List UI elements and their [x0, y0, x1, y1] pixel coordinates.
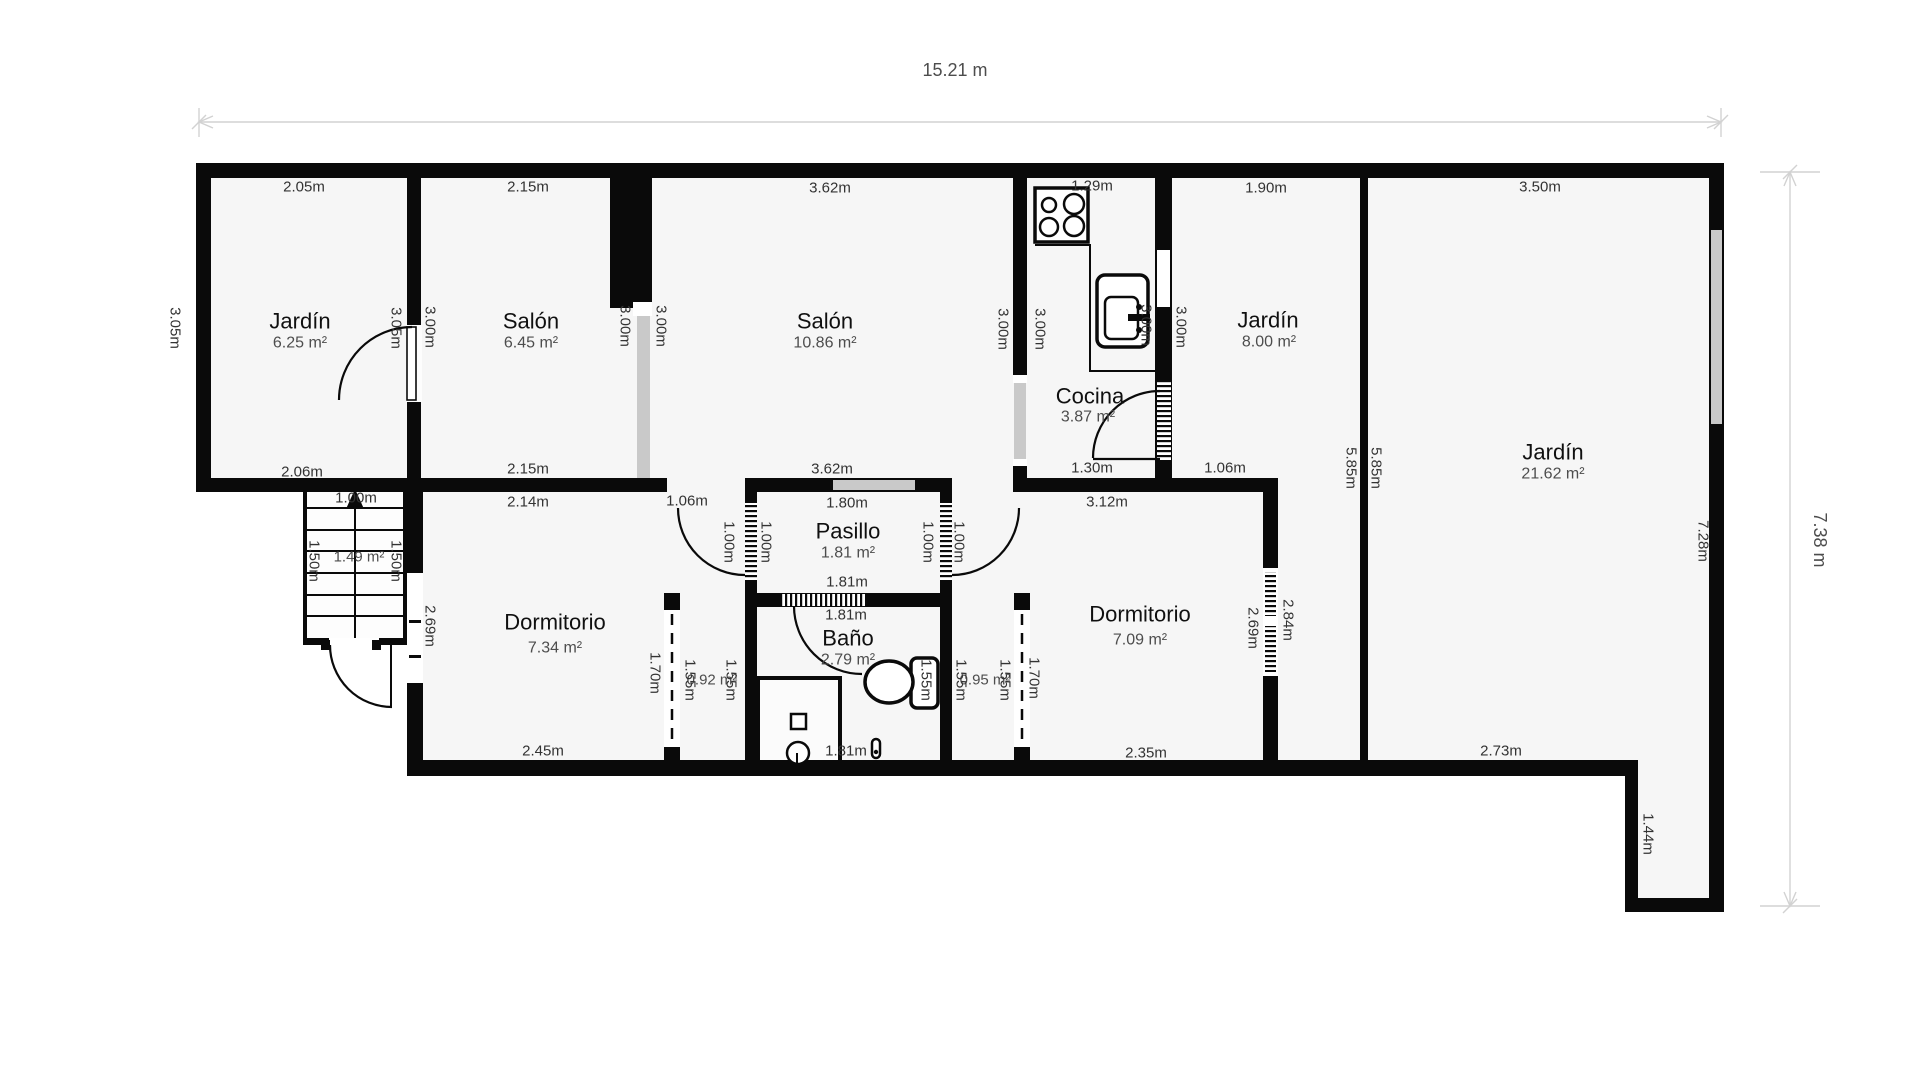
stove-burner — [1064, 216, 1084, 236]
sliding-door-bano — [781, 594, 867, 606]
stairs-wall-bottom-b — [379, 638, 407, 645]
window-dorm-right-glass — [1265, 626, 1276, 672]
dim-label: 1.30m — [1071, 460, 1113, 477]
room-label-jardin-mid: Jardín — [1237, 308, 1298, 333]
wall-jardin-salon-lower — [407, 400, 421, 478]
floorplan-canvas: 15.21 m 7.38 m Jardín 6.25 m² Salón 6.45… — [0, 0, 1920, 1080]
dim-label: 3.62m — [811, 461, 853, 478]
window-right-wall — [1711, 230, 1722, 424]
dim-label: 2.06m — [281, 464, 323, 481]
dim-label: 2.69m — [1245, 607, 1262, 649]
dim-label: 2.15m — [507, 179, 549, 196]
dim-label: 2.69m — [422, 605, 439, 647]
window-dorm-right-glass — [1265, 572, 1276, 616]
room-label-bano: Baño — [822, 626, 873, 651]
room-label-cocina: Cocina — [1056, 384, 1125, 409]
room-area-jardin-right: 21.62 m² — [1521, 466, 1585, 483]
dim-label: 1.00m — [335, 490, 377, 507]
bathroom-accessory-icon — [872, 739, 880, 758]
dim-label: 2.84m — [1280, 599, 1297, 641]
dim-label: 1.50m — [306, 540, 323, 582]
dim-label: 2.73m — [1480, 743, 1522, 760]
dim-label: 5.85m — [1368, 447, 1385, 489]
wall-salon-pillar — [610, 177, 652, 308]
dim-label: 3.00m — [1032, 308, 1049, 350]
dim-label: 1.55m — [682, 659, 699, 701]
room-area-salon-small: 6.45 m² — [504, 335, 559, 352]
wall-jardin-salon-upper — [407, 177, 421, 327]
dim-label: 1.50m — [388, 540, 405, 582]
wall-left — [196, 163, 211, 492]
room-label-pasillo: Pasillo — [816, 519, 881, 544]
dim-label: 3.00m — [653, 305, 670, 347]
dim-label: 1.55m — [723, 659, 740, 701]
wall-mid-c — [1018, 478, 1278, 492]
door-arc-entry — [330, 645, 392, 707]
room-area-cocina: 3.87 m² — [1061, 409, 1116, 426]
stove-burner — [1064, 194, 1084, 214]
window-cap — [1013, 459, 1027, 466]
sliding-door-pasillo-right — [940, 503, 952, 580]
dim-label: 1.80m — [826, 495, 868, 512]
room-area-jardin-mid: 8.00 m² — [1242, 334, 1297, 351]
dim-label: 2.45m — [522, 743, 564, 760]
room-label-dormitorio-left: Dormitorio — [504, 610, 605, 635]
dim-label: 2.05m — [283, 179, 325, 196]
dim-label: 1.70m — [647, 652, 664, 694]
dim-label: 5.85m — [1343, 447, 1360, 489]
dim-label: 3.50m — [1519, 179, 1561, 196]
room-label-dormitorio-right: Dormitorio — [1089, 602, 1190, 627]
window-pasillo-top — [833, 480, 915, 490]
sliding-door-cocina — [1157, 382, 1171, 462]
dim-label: 1.00m — [951, 521, 968, 563]
room-label-jardin-nw: Jardín — [269, 309, 330, 334]
window-cap — [1263, 676, 1278, 682]
dim-label: 1.00m — [758, 521, 775, 563]
window-cap — [407, 566, 423, 573]
dim-label: 1.81m — [826, 574, 868, 591]
window-cap — [407, 683, 423, 690]
dim-label: 1.55m — [997, 659, 1014, 701]
dim-label: 3.05m — [388, 307, 405, 349]
stove-icon — [1035, 188, 1088, 242]
wall-jardin-divider — [1360, 178, 1368, 760]
wall-salon-cocina-upper — [1013, 177, 1027, 380]
window-cap — [1013, 375, 1027, 383]
dim-label: 2.14m — [507, 494, 549, 511]
dim-label: 1.81m — [825, 607, 867, 624]
room-label-salon-big: Salón — [797, 309, 853, 334]
wall-salon-cocina-lower — [1013, 465, 1027, 492]
window-cap — [1263, 562, 1278, 568]
dim-label: 3.00m — [422, 306, 439, 348]
wall-top — [196, 163, 1724, 178]
dim-label: 1.00m — [920, 521, 937, 563]
dim-label: 7.28m — [1695, 520, 1712, 562]
room-area-pasillo: 1.81 m² — [821, 545, 876, 562]
door-leaf-jardin-nw — [407, 327, 416, 400]
room-label-salon-small: Salón — [503, 309, 559, 334]
wall-mid-a — [196, 478, 667, 492]
door-jamb — [372, 640, 381, 650]
total-width-label: 15.21 m — [922, 60, 987, 80]
wall-bottom — [407, 760, 1638, 776]
room-area-jardin-nw: 6.25 m² — [273, 335, 328, 352]
dim-label: 1.29m — [1071, 178, 1113, 195]
window-cocina-right — [1157, 250, 1170, 307]
room-area-dormitorio-left: 7.34 m² — [528, 640, 583, 657]
dim-label: 1.06m — [666, 493, 708, 510]
room-label-jardin-right: Jardín — [1522, 440, 1583, 465]
dim-label: 1.44m — [1640, 813, 1657, 855]
floorplan-page: 15.21 m 7.38 m Jardín 6.25 m² Salón 6.45… — [0, 0, 1920, 1080]
total-height-label: 7.38 m — [1810, 512, 1830, 567]
dim-label: 3.00m — [617, 305, 634, 347]
dim-label: 3.00m — [1173, 306, 1190, 348]
room-area-dormitorio-right: 7.09 m² — [1113, 632, 1168, 649]
dim-label: 1.70m — [1026, 657, 1043, 699]
door-jamb — [321, 640, 330, 650]
dim-label: 3.05m — [167, 307, 184, 349]
dim-label: 1.81m — [825, 743, 867, 760]
dim-label: 1.00m — [721, 521, 738, 563]
dim-label: 2.15m — [507, 461, 549, 478]
room-area-bano: 2.79 m² — [821, 652, 876, 669]
wall-corner-vertical — [1625, 776, 1638, 904]
window-cap — [633, 302, 652, 316]
dim-label: 1.90m — [1245, 180, 1287, 197]
dim-label: 1.06m — [1204, 460, 1246, 477]
shower-drain — [791, 714, 806, 729]
accessory-dot — [874, 750, 878, 754]
room-area-escalera: 1.49 m² — [334, 549, 385, 566]
dim-label: 3.12m — [1086, 494, 1128, 511]
window-divider — [409, 620, 421, 623]
window-divider — [409, 655, 421, 658]
dim-label: 2.35m — [1125, 745, 1167, 762]
wall-bottom-right — [1625, 898, 1724, 912]
dim-label: 1.55m — [918, 659, 935, 701]
dim-label: 1.55m — [953, 659, 970, 701]
window-salon-cocina — [1014, 383, 1026, 459]
window-dorm-left — [407, 566, 423, 690]
stove-burner — [1040, 218, 1058, 236]
dim-label: 3.62m — [809, 180, 851, 197]
sliding-door-pasillo-left — [745, 503, 757, 580]
window-salon-partition — [637, 316, 650, 478]
dim-label: 3.00m — [1138, 304, 1155, 346]
stove-burner — [1042, 198, 1056, 212]
accessory-body — [872, 739, 880, 758]
dim-label: 3.00m — [995, 308, 1012, 350]
room-area-salon-big: 10.86 m² — [793, 335, 857, 352]
